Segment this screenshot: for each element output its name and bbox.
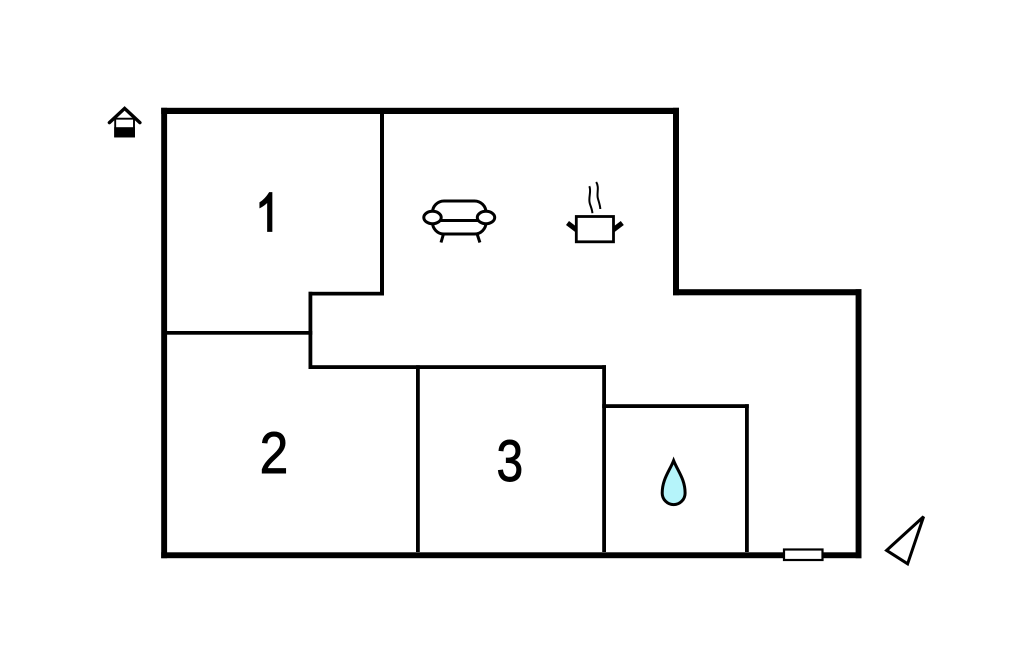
- svg-text:2: 2: [260, 420, 289, 486]
- svg-text:3: 3: [497, 429, 524, 494]
